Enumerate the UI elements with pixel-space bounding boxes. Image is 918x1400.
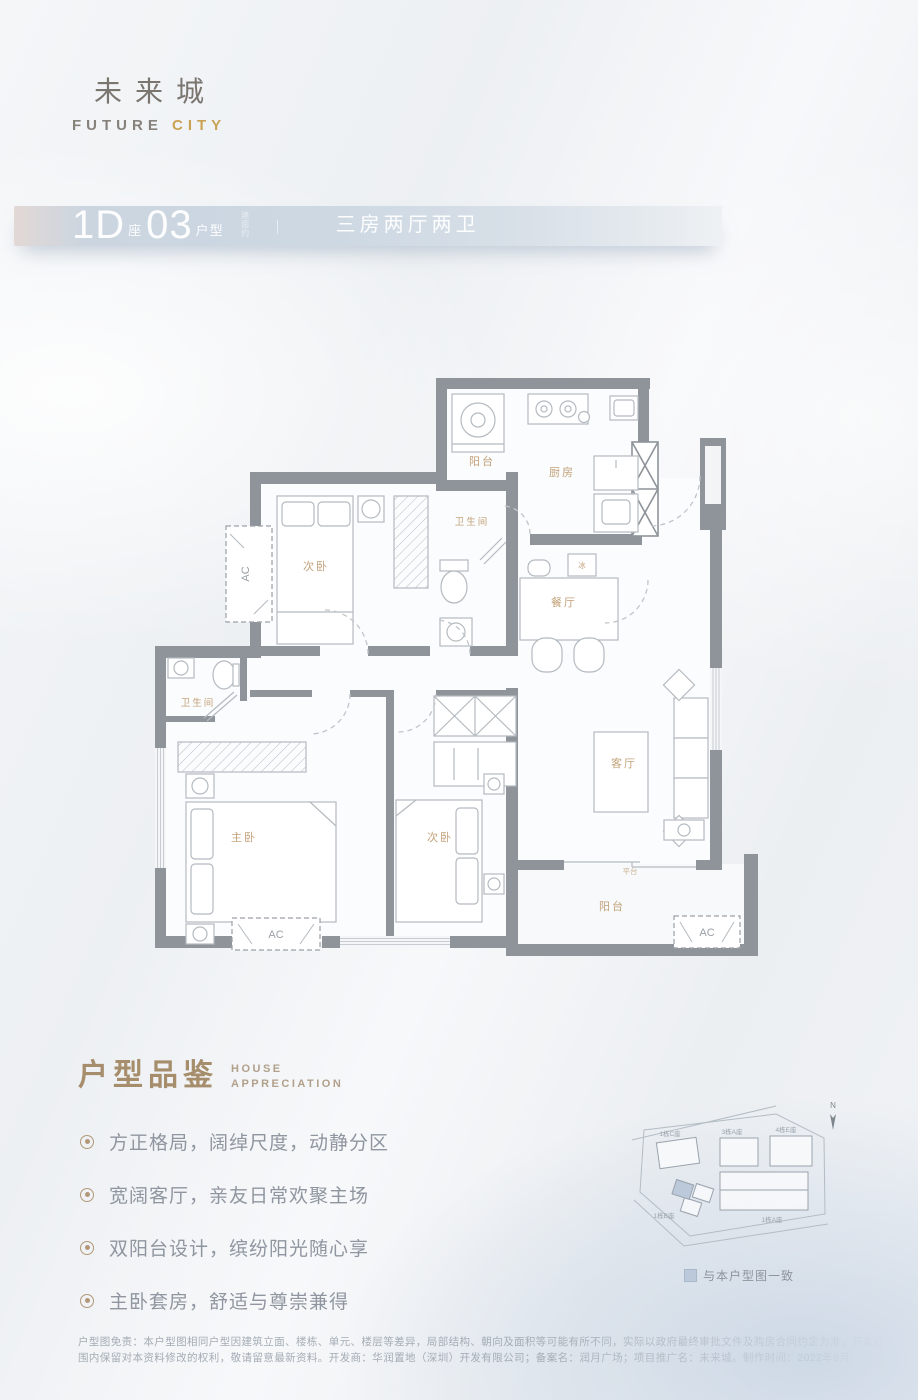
floorplan-drawing: 阳台 厨房 次卧 卫生间 餐厅 冰 卫生间 主卧 次卧 客厅 阳台 平台 AC … (140, 368, 772, 990)
feature-item: 宽阔客厅，亲友日常欢聚主场 (80, 1181, 498, 1208)
label-ac-left: AC (240, 566, 252, 581)
bullet-icon (80, 1135, 94, 1149)
disclaimer-line1: 户型图免责：本户型图相同户型因建筑立面、楼栋、单元、楼层等差异，局部结构、朝向及… (78, 1334, 916, 1350)
north-label: N (830, 1101, 836, 1110)
unit-suffix: 户型 (196, 220, 224, 239)
brochure-page: 未来城 FUTURE CITY 1D 座 03 户型 建面约 三房两厅两卫 (0, 0, 918, 1400)
feature-text: 主卧套房，舒适与尊崇兼得 (109, 1287, 349, 1314)
legend-swatch (684, 1269, 697, 1282)
label-balcony-top: 阳台 (469, 454, 495, 468)
bullet-icon (80, 1188, 94, 1202)
label-bathroom-left: 卫生间 (181, 697, 216, 709)
disclaimer: 户型图免责：本户型图相同户型因建筑立面、楼栋、单元、楼层等差异，局部结构、朝向及… (78, 1334, 916, 1366)
floorplan: 阳台 厨房 次卧 卫生间 餐厅 冰 卫生间 主卧 次卧 客厅 阳台 平台 AC … (140, 368, 772, 990)
label-bedroom-top: 次卧 (303, 559, 329, 573)
bullet-icon (80, 1294, 94, 1308)
band-divider (277, 220, 278, 234)
block-number: 1D (72, 208, 125, 242)
north-arrow-icon: N (830, 1101, 836, 1130)
brand-name-en-primary: FUTURE (72, 117, 172, 134)
appreciation-section: 户型品鉴 HOUSE APPRECIATION 方正格局，阔绰尺度，动静分区 宽… (78, 1050, 498, 1340)
unit-number: 03 (146, 208, 193, 242)
label-balcony-bottom: 阳台 (599, 899, 625, 913)
brand-name-en-accent: CITY (172, 117, 226, 134)
feature-text: 方正格局，阔绰尺度，动静分区 (109, 1128, 389, 1155)
building-label: 4栋E座 (776, 1125, 797, 1134)
bullet-icon (80, 1241, 94, 1255)
appreciation-title-cn: 户型品鉴 (78, 1050, 218, 1094)
label-ac-bottom-right: AC (699, 927, 714, 939)
building-label: 1栋C座 (659, 1129, 681, 1138)
feature-text: 双阳台设计，缤纷阳光随心享 (109, 1234, 369, 1261)
building-label: 1栋A座 (762, 1215, 783, 1224)
brand-name-en: FUTURE CITY (72, 117, 226, 134)
feature-item: 方正格局，阔绰尺度，动静分区 (80, 1128, 498, 1155)
feature-item: 主卧套房，舒适与尊崇兼得 (80, 1287, 498, 1314)
building-label: 3栋A座 (722, 1127, 743, 1136)
site-map: 1栋C座 3栋A座 4栋E座 1栋B座 1栋A座 N 与本户型图一致 (628, 1096, 843, 1284)
highlighted-building (672, 1180, 694, 1200)
brand-logo: 未来城 FUTURE CITY (72, 70, 226, 134)
label-fridge: 冰 (578, 560, 586, 570)
block-suffix: 座 (128, 220, 142, 239)
feature-text: 宽阔客厅，亲友日常欢聚主场 (109, 1181, 369, 1208)
feature-list: 方正格局，阔绰尺度，动静分区 宽阔客厅，亲友日常欢聚主场 双阳台设计，缤纷阳光随… (80, 1128, 498, 1314)
layout-summary: 三房两厅两卫 (336, 208, 480, 242)
site-buildings (656, 1136, 812, 1216)
label-living: 客厅 (611, 756, 637, 770)
appreciation-heading: 户型品鉴 HOUSE APPRECIATION (78, 1050, 498, 1094)
label-platform: 平台 (623, 866, 638, 876)
label-dining: 餐厅 (551, 595, 577, 609)
label-master-bedroom: 主卧 (231, 831, 257, 844)
disclaimer-line2: 围内保留对本资料修改的权利，敬请留意最新资料。开发商：华润置地（深圳）开发有限公… (78, 1350, 916, 1366)
brand-name-cn: 未来城 (94, 70, 226, 110)
appreciation-title-en-line1: HOUSE (231, 1063, 283, 1075)
area-note: 建面约 (240, 211, 251, 238)
site-map-drawing: 1栋C座 3栋A座 4栋E座 1栋B座 1栋A座 N (628, 1096, 843, 1254)
label-bathroom-top: 卫生间 (455, 516, 490, 528)
label-ac-bottom-left: AC (268, 929, 283, 941)
site-map-legend: 与本户型图一致 (684, 1267, 843, 1284)
feature-item: 双阳台设计，缤纷阳光随心享 (80, 1234, 498, 1261)
label-kitchen: 厨房 (549, 466, 575, 479)
legend-text: 与本户型图一致 (703, 1267, 794, 1284)
appreciation-title-en-line2: APPRECIATION (231, 1078, 343, 1090)
right-column-window (705, 446, 721, 504)
label-bedroom-bottom: 次卧 (427, 830, 453, 844)
appreciation-title-en: HOUSE APPRECIATION (231, 1062, 343, 1094)
building-label: 1栋B座 (654, 1211, 675, 1220)
unit-title-band: 1D 座 03 户型 建面约 三房两厅两卫 (14, 206, 722, 246)
